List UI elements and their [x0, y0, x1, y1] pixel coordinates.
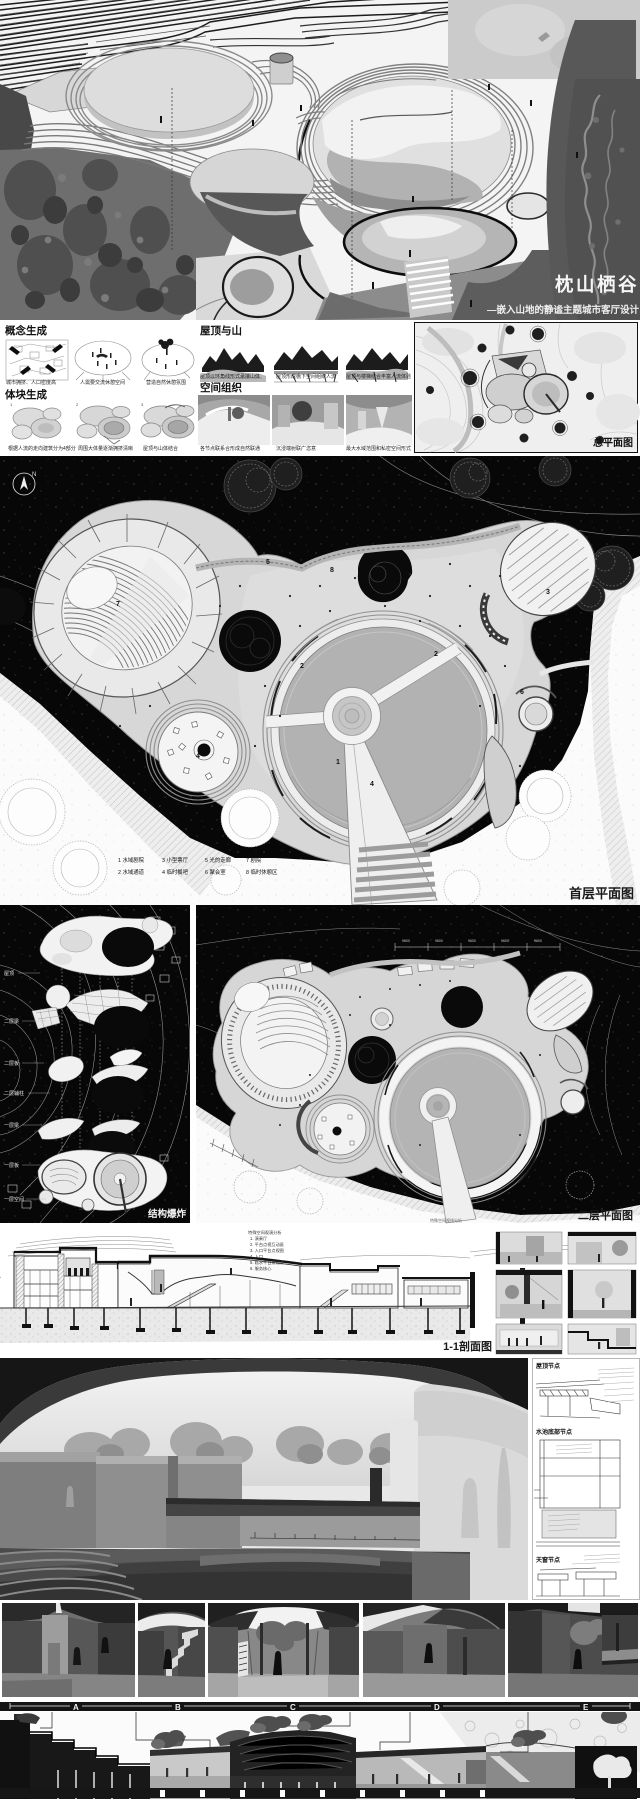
svg-text:2 水域通道: 2 水域通道 [118, 868, 145, 876]
svg-text:1 水域剧院: 1 水域剧院 [118, 856, 145, 864]
svg-text:一层梁: 一层梁 [4, 1122, 19, 1129]
svg-text:特殊空间观演分析: 特殊空间观演分析 [248, 1229, 282, 1236]
svg-text:屋顶与楼梯结合丰富人流体验: 屋顶与楼梯结合丰富人流体验 [346, 373, 411, 380]
svg-text:A: A [73, 1703, 79, 1712]
svg-text:2: 2 [434, 651, 438, 658]
svg-text:2: 2 [300, 663, 304, 670]
svg-text:N: N [32, 472, 36, 478]
svg-text:枕山栖谷: 枕山栖谷 [555, 274, 639, 295]
svg-text:1-1剖面图: 1-1剖面图 [443, 1339, 492, 1353]
svg-text:二层平面图: 二层平面图 [578, 1209, 633, 1222]
svg-text:9600: 9600 [534, 939, 542, 943]
svg-text:二层梁: 二层梁 [4, 1018, 19, 1025]
svg-text:屋顶以环角线形式承接山体: 屋顶以环角线形式承接山体 [200, 373, 260, 380]
svg-text:3 小型票厅: 3 小型票厅 [162, 856, 189, 864]
svg-text:一层板: 一层板 [4, 1162, 19, 1169]
svg-text:D: D [434, 1703, 440, 1712]
svg-text:E: E [583, 1703, 589, 1712]
svg-text:屋顶节点: 屋顶节点 [536, 1362, 560, 1370]
svg-text:沉浸端射联广恣意: 沉浸端射联广恣意 [276, 445, 316, 452]
svg-text:2. 平台点视互动區: 2. 平台点视互动區 [250, 1241, 284, 1248]
svg-text:8 临时休憩区: 8 临时休憩区 [246, 868, 278, 876]
svg-text:空间组织: 空间组织 [200, 381, 242, 394]
svg-text:4: 4 [196, 753, 200, 760]
svg-text:9600: 9600 [435, 939, 443, 943]
svg-text:4. 入口: 4. 入口 [250, 1254, 263, 1259]
svg-text:二层板: 二层板 [4, 1060, 19, 1067]
svg-text:体块生成: 体块生成 [5, 388, 47, 401]
svg-text:概念生成: 概念生成 [5, 324, 47, 337]
svg-text:1. 演奏厅: 1. 演奏厅 [250, 1235, 267, 1242]
svg-text:3: 3 [546, 589, 550, 596]
svg-text:6: 6 [520, 689, 524, 696]
svg-text:5. 临水平台景观点: 5. 临水平台景观点 [250, 1259, 284, 1266]
svg-text:总平面图: 总平面图 [593, 436, 633, 449]
svg-text:1: 1 [336, 759, 340, 766]
svg-text:一层空间: 一层空间 [4, 1196, 24, 1203]
svg-text:3. 入口平台点视图: 3. 入口平台点视图 [250, 1247, 284, 1254]
svg-text:B: B [175, 1703, 181, 1712]
svg-text:屋顶与山: 屋顶与山 [200, 324, 242, 337]
svg-text:5: 5 [266, 559, 270, 566]
svg-text:屋顶: 屋顶 [4, 971, 14, 977]
svg-text:首层平面图: 首层平面图 [569, 886, 634, 901]
svg-text:6 聚会室: 6 聚会室 [205, 868, 226, 876]
svg-text:各节点联系合形成自然联通: 各节点联系合形成自然联通 [200, 445, 260, 452]
svg-text:7: 7 [116, 601, 120, 608]
svg-text:根据人流的走向建筑分为4部分: 根据人流的走向建筑分为4部分 [8, 445, 76, 452]
svg-text:4 临时餐吧: 4 临时餐吧 [162, 868, 189, 876]
svg-text:结构爆炸: 结构爆炸 [147, 1208, 187, 1220]
svg-text:8: 8 [330, 567, 334, 574]
svg-text:6. 服务核心: 6. 服务核心 [250, 1265, 272, 1272]
svg-text:9600: 9600 [501, 939, 509, 943]
svg-text:4: 4 [370, 781, 374, 788]
svg-text:特殊空间视线分析: 特殊空间视线分析 [430, 1217, 462, 1223]
svg-text:9600: 9600 [468, 939, 476, 943]
svg-text:水池底部节点: 水池底部节点 [536, 1428, 572, 1436]
svg-text:屋顶形成檐下空间组织人流: 屋顶形成檐下空间组织人流 [276, 373, 336, 380]
svg-text:7 剧院: 7 剧院 [246, 856, 262, 864]
svg-text:C: C [290, 1703, 296, 1712]
svg-text:人需要交流休憩空间: 人需要交流休憩空间 [80, 379, 125, 386]
svg-text:城市拥挤、人口密度高: 城市拥挤、人口密度高 [6, 379, 56, 386]
svg-text:5 光的走廊: 5 光的走廊 [205, 856, 232, 864]
svg-text:最大水域范围和私密空间形式: 最大水域范围和私密空间形式 [346, 445, 411, 452]
svg-text:屋顶与山体结合: 屋顶与山体结合 [143, 445, 178, 452]
svg-text:营造自然休憩氛围: 营造自然休憩氛围 [146, 379, 186, 386]
svg-text:9600: 9600 [402, 939, 410, 943]
svg-text:二层辅柱: 二层辅柱 [4, 1090, 24, 1097]
svg-text:—嵌入山地的静谧主题城市客厅设计: —嵌入山地的静谧主题城市客厅设计 [487, 304, 640, 316]
svg-text:周围大体量逐渐拥挤清晰: 周围大体量逐渐拥挤清晰 [78, 445, 133, 452]
svg-text:天窗节点: 天窗节点 [536, 1556, 560, 1564]
